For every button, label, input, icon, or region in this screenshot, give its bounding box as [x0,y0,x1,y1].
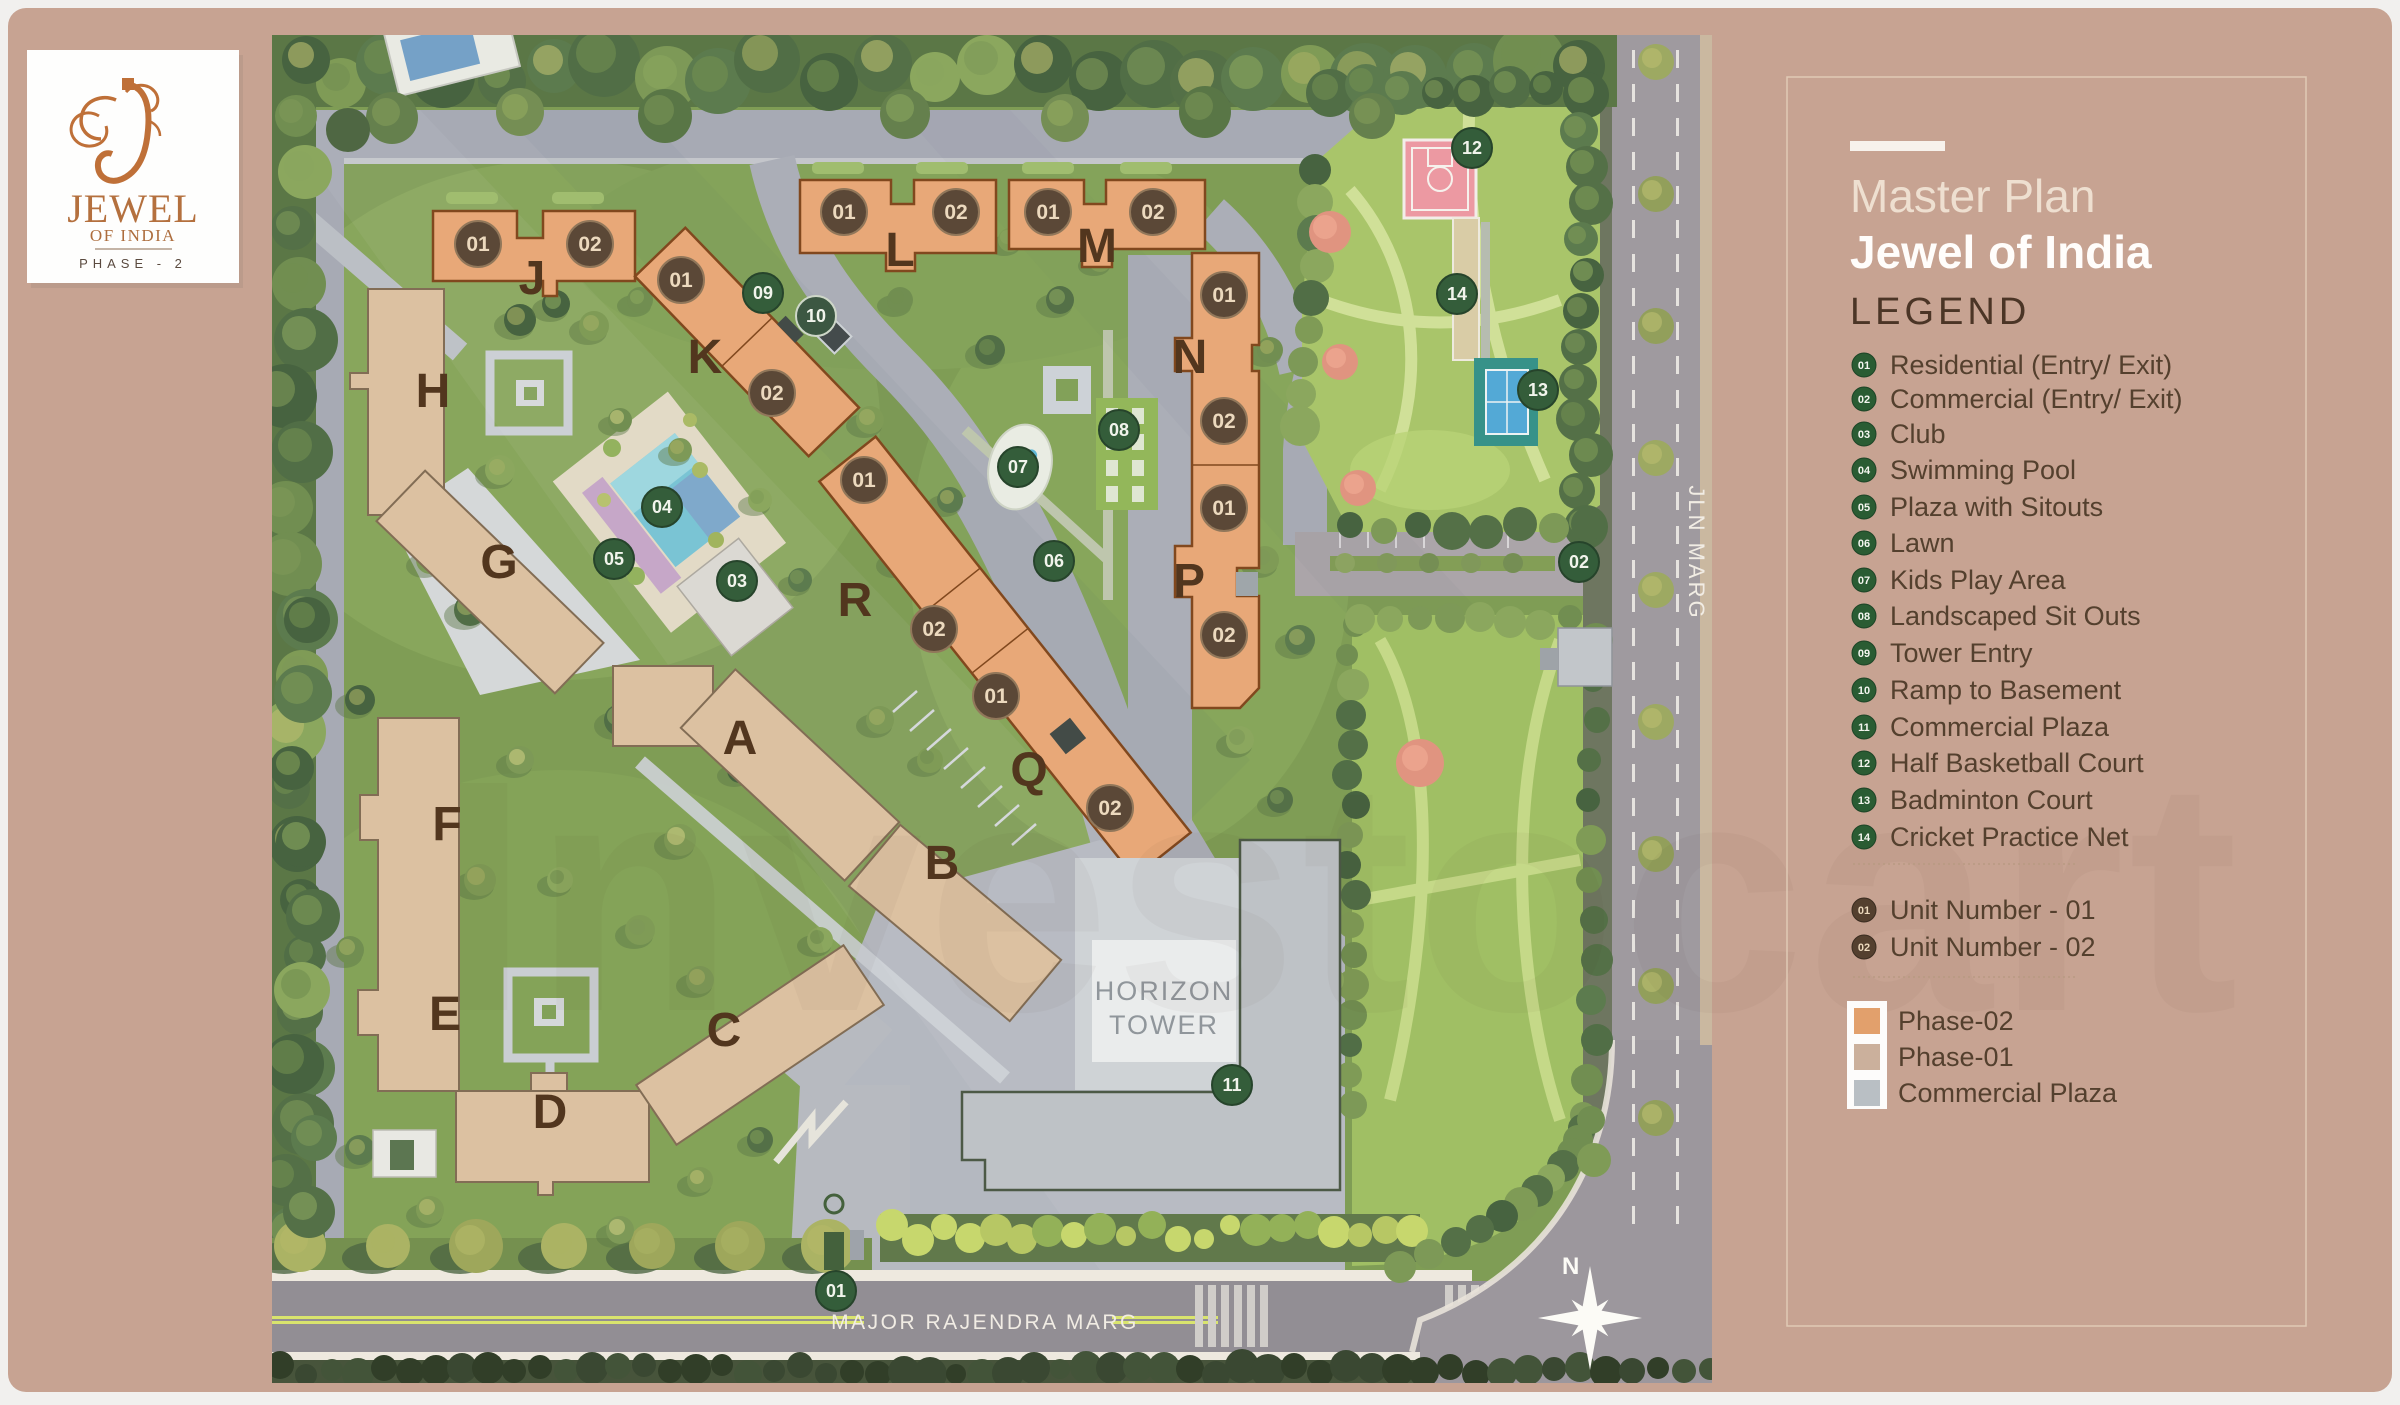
svg-text:Commercial Plaza: Commercial Plaza [1890,712,2110,742]
svg-text:Badminton Court: Badminton Court [1890,785,2093,815]
svg-text:OF INDIA: OF INDIA [90,226,176,245]
svg-text:Kids Play Area: Kids Play Area [1890,565,2067,595]
svg-text:07: 07 [1858,575,1870,587]
svg-text:Club: Club [1890,419,1946,449]
svg-text:Ramp to Basement: Ramp to Basement [1890,675,2122,705]
svg-text:Plaza with Sitouts: Plaza with Sitouts [1890,492,2103,522]
svg-text:Commercial (Entry/ Exit): Commercial (Entry/ Exit) [1890,384,2183,414]
svg-text:02: 02 [1858,942,1870,954]
svg-text:01: 01 [1858,905,1870,917]
svg-text:10: 10 [1858,685,1870,697]
svg-text:JEWEL: JEWEL [67,186,199,231]
svg-text:Master Plan: Master Plan [1850,170,2095,222]
svg-text:Half Basketball Court: Half Basketball Court [1890,748,2144,778]
svg-text:06: 06 [1858,538,1870,550]
svg-text:11: 11 [1858,722,1870,734]
svg-text:12: 12 [1858,758,1870,770]
svg-text:01: 01 [1858,360,1870,372]
svg-text:09: 09 [1858,648,1870,660]
svg-text:Phase-02: Phase-02 [1898,1006,2014,1036]
svg-text:LEGEND: LEGEND [1850,291,2030,333]
svg-text:Residential (Entry/ Exit): Residential (Entry/ Exit) [1890,350,2172,380]
svg-text:Landscaped Sit Outs: Landscaped Sit Outs [1890,601,2141,631]
svg-text:Cricket Practice Net: Cricket Practice Net [1890,822,2129,852]
svg-text:08: 08 [1858,611,1870,623]
svg-text:Unit Number - 02: Unit Number - 02 [1890,932,2096,962]
svg-text:Lawn: Lawn [1890,528,1955,558]
svg-text:Tower Entry: Tower Entry [1890,638,2033,668]
svg-text:Commercial Plaza: Commercial Plaza [1898,1078,2118,1108]
svg-text:14: 14 [1858,832,1871,844]
svg-text:04: 04 [1858,465,1871,477]
svg-text:02: 02 [1858,394,1870,406]
svg-text:Phase-01: Phase-01 [1898,1042,2014,1072]
svg-text:Swimming Pool: Swimming Pool [1890,455,2076,485]
svg-text:Jewel of India: Jewel of India [1850,226,2152,278]
svg-text:03: 03 [1858,429,1870,441]
svg-text:Unit Number - 01: Unit Number - 01 [1890,895,2096,925]
svg-text:05: 05 [1858,502,1870,514]
svg-text:PHASE - 2: PHASE - 2 [79,256,187,271]
svg-text:13: 13 [1858,795,1870,807]
